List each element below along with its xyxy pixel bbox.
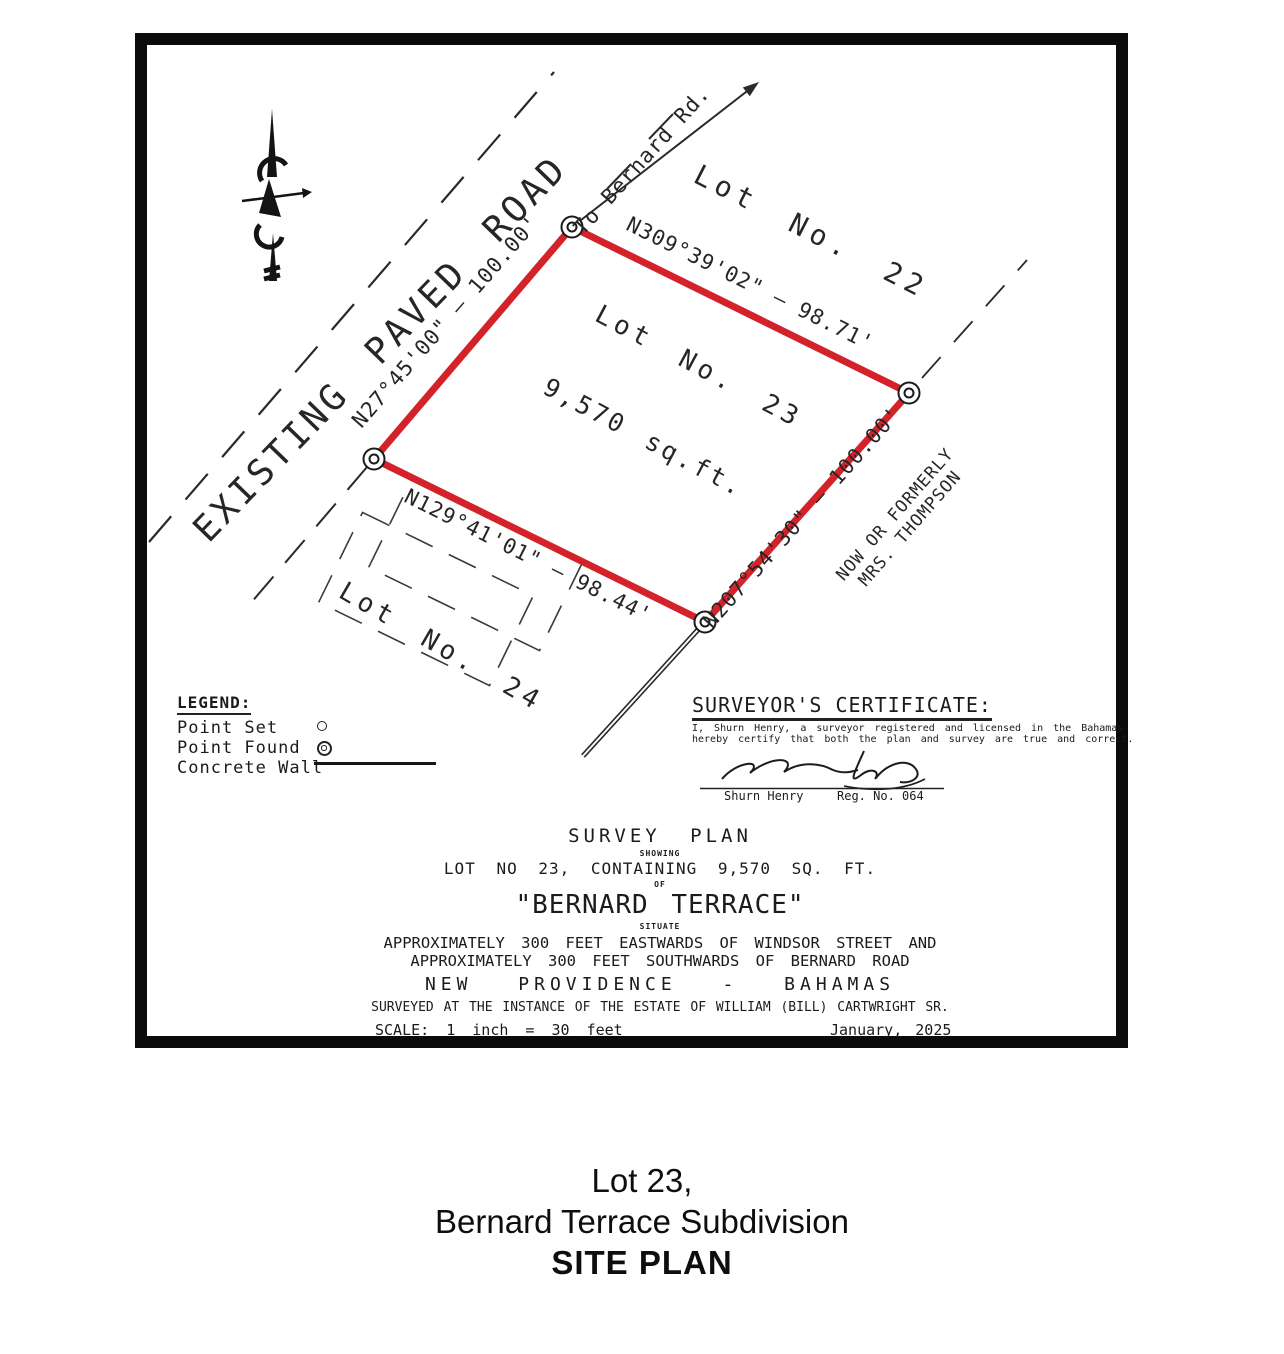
title-block-subdivision-name: "BERNARD TERRACE" (205, 890, 1115, 920)
road-label: EXISTING PAVED ROAD (185, 148, 576, 550)
title-block: SURVEY PLAN SHOWING LOT NO 23, CONTAININ… (205, 825, 1115, 1039)
title-block-title: SURVEY PLAN (205, 825, 1115, 847)
title-block-situate: SITUATE (205, 922, 1115, 931)
bearing-left-label: N27°45'00" — 100.00' (347, 211, 544, 433)
legend-title: LEGEND: (177, 693, 251, 715)
caption-lot: Lot 23, (0, 1160, 1284, 1201)
surveyors-certificate: SURVEYOR'S CERTIFICATE: I, Shurn Henry, … (692, 693, 1110, 804)
title-block-of: OF (205, 880, 1115, 889)
legend-row-point-found: Point Found (177, 738, 487, 755)
certificate-body-line2: hereby certify that both the plan and su… (692, 734, 1110, 745)
title-block-location: APPROXIMATELY 300 FEET EASTWARDS OF WIND… (205, 934, 1115, 970)
survey-date: January, 2025 (830, 1021, 951, 1039)
legend-row-concrete-wall: Concrete Wall (177, 758, 487, 775)
concrete-wall-symbol-icon (314, 758, 436, 765)
legend-point-found-label: Point Found (177, 738, 301, 758)
signatory-name: Shurn Henry (724, 789, 803, 803)
title-block-scale-row: SCALE: 1 inch = 30 feet January, 2025 (205, 1021, 1115, 1039)
legend-concrete-wall-label: Concrete Wall (177, 758, 323, 778)
caption: Lot 23, Bernard Terrace Subdivision SITE… (0, 1160, 1284, 1283)
lot22-boundary-dashed-line (922, 260, 1027, 378)
title-block-lot-line: LOT NO 23, CONTAINING 9,570 SQ. FT. (205, 859, 1115, 878)
caption-site-plan: SITE PLAN (0, 1242, 1284, 1283)
point-set-symbol-icon (317, 721, 327, 731)
title-block-location-line2: APPROXIMATELY 300 FEET SOUTHWARDS OF BER… (205, 952, 1115, 970)
road-edge-far-dashed-line (149, 72, 554, 542)
certificate-body-line1: I, Shurn Henry, a surveyor registered an… (692, 723, 1110, 734)
legend-row-point-set: Point Set (177, 718, 487, 735)
concrete-wall-line-1 (584, 623, 706, 757)
title-block-instance-line: SURVEYED AT THE INSTANCE OF THE ESTATE O… (205, 1000, 1115, 1015)
certificate-title: SURVEYOR'S CERTIFICATE: (692, 693, 992, 721)
legend-point-set-label: Point Set (177, 718, 278, 738)
to-bernard-arrowhead (743, 82, 759, 96)
scale-label: SCALE: 1 inch = 30 feet (375, 1021, 623, 1039)
certificate-names: Shurn Henry Reg. No. 064 (692, 789, 1110, 804)
certificate-body: I, Shurn Henry, a surveyor registered an… (692, 723, 1110, 745)
caption-subdivision: Bernard Terrace Subdivision (0, 1201, 1284, 1242)
title-block-island-line: NEW PROVIDENCE - BAHAMAS (205, 974, 1115, 995)
point-found-icon (905, 389, 914, 398)
point-found-symbol-icon (317, 741, 332, 756)
surveyor-signature (692, 745, 1110, 791)
title-block-showing: SHOWING (205, 849, 1115, 858)
title-block-location-line1: APPROXIMATELY 300 FEET EASTWARDS OF WIND… (205, 934, 1115, 952)
north-arrow-icon (242, 109, 312, 281)
registration-number: Reg. No. 064 (837, 789, 924, 803)
point-found-icon (370, 455, 379, 464)
concrete-wall-line-2 (582, 621, 704, 755)
legend: LEGEND: Point Set Point Found Concrete W… (177, 693, 487, 775)
bearing-right-label: N207°54'30" — 100.00' (698, 402, 906, 632)
plan-frame: EXISTING PAVED ROAD To Bernard Rd. N27°4… (135, 33, 1128, 1048)
